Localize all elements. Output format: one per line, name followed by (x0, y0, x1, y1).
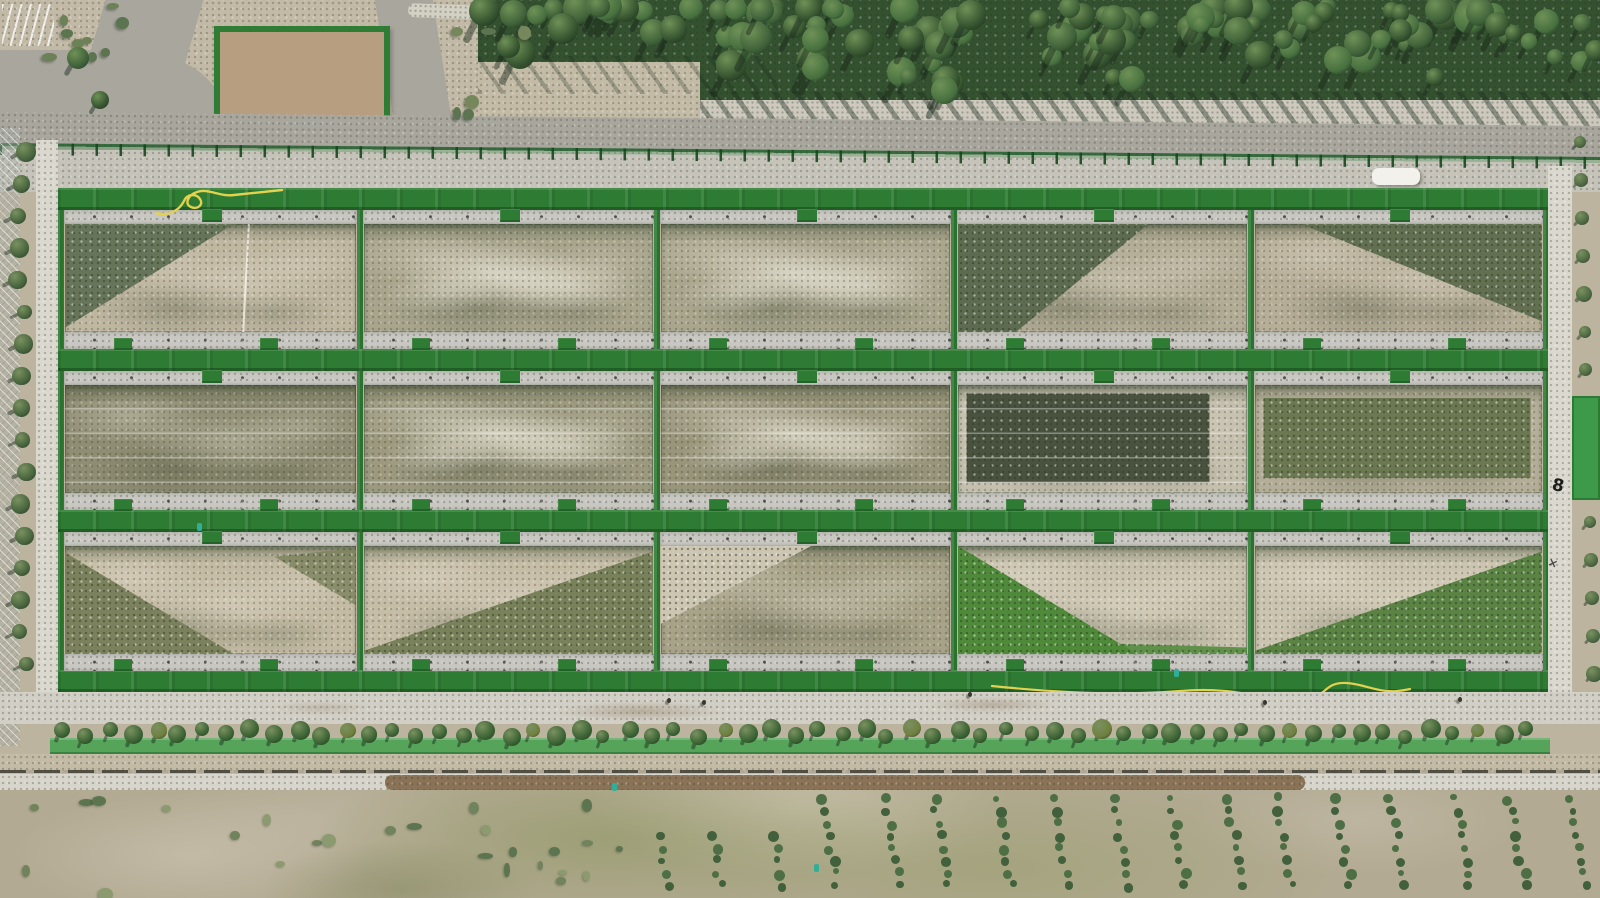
plantation-conifer (658, 858, 665, 865)
forest-tree (802, 26, 829, 53)
scrub-bush (162, 805, 171, 812)
forest-tree (1547, 49, 1563, 65)
gravel-strip-bottom (660, 654, 951, 671)
forest-tree-canopy (1389, 19, 1412, 42)
row-tree-canopy (1518, 721, 1533, 736)
row-tree (572, 720, 591, 739)
row-tree (361, 726, 378, 743)
right-shrub-canopy (1579, 363, 1592, 376)
forest-tree-canopy (1059, 0, 1080, 18)
plantation-conifer (1290, 881, 1296, 887)
plantation-conifer (1280, 833, 1289, 842)
bar-tab-up (412, 338, 430, 350)
row-tree (596, 730, 609, 743)
bush (60, 15, 69, 25)
plantation-conifer (1575, 843, 1584, 852)
bar-tab-down (797, 370, 817, 383)
plantation-conifer (826, 832, 834, 840)
row-tree-canopy (265, 725, 283, 743)
plantation-conifer (774, 844, 783, 853)
bar-tab-down (500, 531, 520, 544)
forest-tree (1505, 25, 1522, 42)
left-row-tree-canopy (10, 238, 29, 257)
plantation-conifer (1335, 820, 1345, 830)
forest-tree-canopy (469, 0, 499, 26)
bar-tab-up (114, 659, 132, 671)
plantation-conifer (1344, 881, 1352, 889)
row-tree (408, 728, 423, 743)
pale-patch (670, 228, 942, 327)
plot-r2c5 (1254, 371, 1543, 510)
forest-tree (898, 26, 923, 51)
row-tree-canopy (951, 721, 969, 739)
white-vehicle (1372, 168, 1420, 185)
forest-tree (956, 0, 986, 30)
bar-tab-up (1448, 338, 1466, 350)
plantation-conifer (774, 856, 780, 862)
row-tree (1190, 724, 1206, 740)
right-shrub (1574, 173, 1589, 188)
row-tree (77, 728, 92, 743)
row-tree (1353, 724, 1371, 742)
row-tree-canopy (526, 723, 540, 737)
gravel-strip-bottom (1254, 654, 1543, 671)
row-tree-canopy (1213, 727, 1228, 742)
scrub-bush (616, 846, 623, 852)
plantation-conifer (881, 793, 891, 803)
forest-tree (588, 0, 610, 17)
plantation-conifer (1237, 867, 1245, 875)
bar-tab-up (260, 338, 278, 350)
drip-lines (661, 385, 950, 493)
left-row-tree-canopy (14, 334, 33, 353)
left-row-tree-canopy (16, 142, 36, 162)
forest-tree-canopy (1426, 68, 1444, 86)
forest-tree (1585, 40, 1600, 60)
row-tree-canopy (924, 728, 941, 745)
bar-tab-up (855, 338, 873, 350)
plantation-conifer (887, 833, 895, 841)
forest-tree (1389, 19, 1412, 42)
row-tree-canopy (475, 721, 494, 740)
plantation-conifer (1398, 870, 1405, 877)
plot-r2c4-vegetation (958, 385, 1247, 493)
lone-tree-canopy (67, 47, 89, 69)
bar-tab-up (1303, 499, 1321, 511)
plot-r3c3 (660, 532, 951, 671)
bar-tab-up (412, 659, 430, 671)
grid-green-bar (55, 510, 1552, 532)
left-row-tree (15, 527, 33, 545)
forest-tree (1305, 14, 1323, 32)
right-shrub-canopy (1575, 211, 1589, 225)
plantation-conifer (1238, 882, 1246, 890)
vegetation-patch (364, 546, 653, 654)
plantation-conifer (1330, 793, 1341, 804)
bar-tab-up (260, 499, 278, 511)
forest-tree (1140, 11, 1158, 29)
row-tree (151, 722, 168, 739)
right-shrub (1576, 286, 1592, 302)
plantation-conifer (1522, 880, 1531, 889)
bar-tab-down (500, 209, 520, 222)
scrub-bush (385, 826, 396, 835)
row-tree (1142, 724, 1157, 739)
plantation-conifer (1509, 807, 1517, 815)
gravel-strip-bottom (64, 654, 357, 671)
row-tree-canopy (1071, 728, 1086, 743)
plantation-conifer (1113, 833, 1122, 842)
plantation-conifer (712, 871, 719, 878)
bar-tab-down (1094, 531, 1114, 544)
row-tree-canopy (1025, 726, 1040, 741)
teal-marker (814, 864, 819, 872)
row-tree (291, 721, 310, 740)
vegetation-patch (661, 546, 950, 654)
plot-r1c1 (64, 210, 357, 349)
plantation-conifer (1121, 858, 1130, 867)
plot-r3c1 (64, 532, 357, 671)
plantation-conifer (1336, 833, 1343, 840)
plantation-conifer (1110, 794, 1120, 804)
row-tree (690, 729, 707, 746)
plantation-conifer (1346, 869, 1356, 879)
row-tree-canopy (547, 726, 567, 746)
right-shrub-canopy (1584, 516, 1596, 528)
row-tree (1116, 726, 1131, 741)
bar-tab-up (1006, 659, 1024, 671)
forest-tree-canopy (931, 77, 958, 104)
row-tree (1445, 726, 1460, 741)
row-tree-canopy (999, 722, 1013, 736)
plantation-conifer (1224, 817, 1234, 827)
person-dot (1263, 700, 1267, 705)
plot-r1c5 (1254, 210, 1543, 349)
row-tree (312, 727, 330, 745)
bar-tab-up (855, 659, 873, 671)
plantation-conifer (939, 846, 948, 855)
forest-tree-canopy (588, 0, 610, 17)
bar-tab-up (114, 338, 132, 350)
bar-tab-up (709, 499, 727, 511)
bush (101, 48, 111, 57)
plantation-conifer (1396, 858, 1405, 867)
plantation-conifer (1458, 831, 1465, 838)
scrub-bush (30, 804, 39, 811)
left-row-tree (11, 591, 30, 610)
teal-marker (197, 523, 202, 531)
gravel-strip-bottom (660, 332, 951, 349)
row-tree-canopy (361, 726, 378, 743)
lone-tree-canopy (91, 91, 109, 109)
row-tree (1421, 719, 1441, 739)
row-tree (1071, 728, 1086, 743)
row-tree-canopy (1305, 725, 1322, 742)
right-shrub (1576, 249, 1590, 263)
plot-r1c3-vegetation (661, 224, 950, 332)
forest-tree (1426, 68, 1444, 86)
vegetation-patch (958, 546, 1247, 654)
row-tree (644, 728, 660, 744)
plot-r3c5 (1254, 532, 1543, 671)
forest-tree (750, 0, 774, 22)
row-tree (1234, 723, 1248, 737)
plantation-conifer (1055, 833, 1065, 843)
scrub-bush (230, 831, 240, 841)
right-shrub-canopy (1576, 249, 1590, 263)
row-tree (503, 728, 521, 746)
right-shrub (1575, 211, 1589, 225)
left-row-tree-canopy (17, 463, 36, 482)
plot-r2c4 (957, 371, 1248, 510)
scrub-bush (263, 814, 271, 826)
forest-tree (1059, 0, 1080, 18)
bar-tab-up (1152, 499, 1170, 511)
bush (465, 95, 479, 109)
forest-tree-canopy (1119, 66, 1145, 92)
row-tree (1495, 725, 1514, 744)
grid-green-bar (55, 349, 1552, 371)
row-tree-canopy (1353, 724, 1371, 742)
forest-tree (1324, 46, 1352, 74)
left-row-tree (8, 271, 27, 290)
row-tree (739, 724, 758, 743)
teal-marker (612, 783, 617, 791)
row-tree (762, 719, 781, 738)
row-tree (240, 719, 259, 738)
plantation-conifer (932, 794, 943, 805)
left-row-tree-canopy (13, 175, 30, 192)
bar-tab-up (1448, 499, 1466, 511)
bar-tab-up (1303, 659, 1321, 671)
row-tree-canopy (503, 728, 521, 746)
left-row-tree-canopy (11, 591, 30, 610)
plantation-conifer (1513, 856, 1524, 867)
bar-tab-up (1152, 659, 1170, 671)
plantation-conifer (1502, 796, 1512, 806)
right-shrub-canopy (1574, 136, 1587, 149)
row-tree (1471, 724, 1484, 737)
row-tree-canopy (195, 722, 209, 736)
row-tree-canopy (1375, 724, 1390, 739)
row-tree-canopy (903, 719, 921, 737)
row-tree-canopy (291, 721, 310, 740)
plantation-conifer (937, 830, 946, 839)
forest-tree (725, 0, 747, 20)
forest-tree (548, 13, 579, 44)
plantation-conifer (1172, 820, 1182, 830)
bottom-scrubland (0, 790, 1600, 898)
plantation-conifer (1572, 832, 1580, 840)
forest-tree-canopy (1274, 30, 1293, 49)
plantation-conifer (1064, 870, 1072, 878)
left-row-tree-canopy (14, 560, 31, 577)
plantation-conifer (1065, 881, 1073, 889)
plantation-conifer (1395, 831, 1403, 839)
bar-tab-up (260, 659, 278, 671)
row-tree (924, 728, 941, 745)
plantation-conifer (1055, 843, 1063, 851)
plantation-conifer (719, 880, 726, 887)
plot-r1c5-vegetation (1255, 224, 1542, 332)
row-tree-canopy (1445, 726, 1460, 741)
row-tree (265, 725, 283, 743)
left-row-tree-canopy (11, 494, 30, 513)
row-tree (622, 721, 639, 738)
plantation-conifer (1179, 880, 1188, 889)
row-tree-canopy (690, 729, 707, 746)
scrub-bush (312, 840, 323, 847)
forest-tree (1193, 16, 1210, 33)
bar-tab-down (797, 209, 817, 222)
bar-tab-up (855, 499, 873, 511)
scrub-bush (469, 802, 479, 814)
white-fence-posts (2, 4, 54, 46)
plantation-conifer (895, 867, 904, 876)
plantation-conifer (707, 831, 717, 841)
plantation-conifer (1170, 831, 1179, 840)
gravel-strip-bottom (660, 493, 951, 510)
plantation-conifer (1275, 819, 1282, 826)
row-tree-canopy (456, 728, 471, 743)
plantation-conifer (1577, 858, 1586, 867)
plantation-conifer (1002, 832, 1010, 840)
plantation-conifer (831, 882, 838, 889)
plot-r3c3-vegetation (661, 546, 950, 654)
plantation-conifer (936, 821, 943, 828)
row-tree-canopy (1161, 723, 1181, 743)
bar-tab-down (202, 370, 222, 383)
row-tree-canopy (1046, 722, 1064, 740)
plantation-conifer (1116, 819, 1122, 825)
left-row-tree (19, 657, 34, 672)
person-dot (968, 692, 972, 697)
row-tree (788, 727, 805, 744)
plantation-conifer (1120, 846, 1128, 854)
forest-tree (1274, 30, 1293, 49)
forest-tree (660, 15, 688, 43)
plantation-conifer (1450, 794, 1457, 801)
left-row-tree (13, 175, 30, 192)
plantation-conifer (662, 870, 671, 879)
gravel-strip-bottom (1254, 332, 1543, 349)
plantation-conifer (1463, 881, 1472, 890)
row-tree-canopy (719, 723, 733, 737)
plantation-conifer (1383, 794, 1392, 803)
vegetation-patch (958, 224, 1247, 332)
plantation-conifer (944, 870, 952, 878)
row-tree-canopy (218, 725, 234, 741)
row-tree-canopy (1142, 724, 1157, 739)
gravel-strip-bottom (363, 332, 654, 349)
left-row-tree (12, 367, 31, 386)
left-row-tree (14, 334, 33, 353)
pale-patch (373, 228, 645, 327)
plantation-conifer (665, 882, 674, 891)
bush (518, 26, 530, 39)
white-path-right (1548, 166, 1572, 714)
forest-tree-canopy (500, 0, 527, 27)
forest-tree-canopy (1425, 0, 1453, 24)
bar-tab-down (1094, 370, 1114, 383)
plantation-conifer (1233, 844, 1240, 851)
forest-tree-canopy (548, 13, 579, 44)
row-tree-canopy (54, 722, 70, 738)
row-tree (168, 725, 186, 743)
row-tree-canopy (1092, 719, 1112, 739)
row-tree (973, 728, 988, 743)
plantation-conifer (778, 883, 786, 891)
forest-tree-canopy (660, 15, 688, 43)
row-tree (666, 722, 680, 736)
plantation-conifer (1510, 831, 1521, 842)
forest-tree (931, 77, 958, 104)
forest-tree (1101, 5, 1126, 30)
row-tree-canopy (1421, 719, 1441, 739)
right-shrub-canopy (1574, 173, 1589, 188)
plot-r3c5-vegetation (1255, 546, 1542, 654)
plantation-conifer (930, 806, 937, 813)
forest-tree-canopy (956, 0, 986, 30)
plantation-conifer (1565, 795, 1573, 803)
yellow-hose-coil-top (150, 183, 290, 223)
plantation-conifer (1392, 845, 1399, 852)
gravel-strip-bottom (363, 654, 654, 671)
pale-patch (373, 389, 645, 488)
bush (61, 29, 73, 38)
plantation-conifer (993, 796, 1000, 803)
row-tree (195, 722, 209, 736)
vegetation-patch (958, 385, 1247, 493)
field-plot-grid (57, 188, 1550, 692)
plantation-conifer (830, 856, 841, 867)
plantation-conifer (1167, 808, 1174, 815)
plantation-conifer (1054, 818, 1062, 826)
left-row-tree (12, 624, 27, 639)
row-tree-canopy (1282, 723, 1297, 738)
plot-r2c1-vegetation (65, 385, 356, 493)
scrub-bush (22, 865, 30, 877)
bar-tab-down (1390, 209, 1410, 222)
row-tree (526, 723, 540, 737)
scrub-bush (549, 847, 559, 856)
forest-tree-canopy (1521, 33, 1538, 50)
left-row-tree-canopy (13, 399, 30, 416)
forest-tree-canopy (1029, 10, 1049, 30)
plantation-conifer (820, 807, 829, 816)
plot-r1c4 (957, 210, 1248, 349)
left-row-tree-canopy (12, 624, 27, 639)
scrub-bush (276, 861, 285, 867)
forest-tree (1425, 0, 1453, 24)
plot-r2c3 (660, 371, 951, 510)
row-tree-canopy (168, 725, 186, 743)
forest-tree-canopy (1324, 46, 1352, 74)
plot-r2c2-vegetation (364, 385, 653, 493)
plantation-conifer (1283, 869, 1292, 878)
plantation-conifer (1341, 845, 1350, 854)
plantation-conifer (1391, 818, 1401, 828)
plot-r1c3 (660, 210, 951, 349)
forest-tree-canopy (890, 0, 919, 23)
plantation-conifer (1234, 856, 1243, 865)
row-tree (1092, 719, 1112, 739)
gravel-strip-bottom (64, 493, 357, 510)
vegetation-patch (65, 224, 356, 332)
forest-tree (500, 0, 527, 27)
gravel-strip-bottom (363, 493, 654, 510)
right-shrub (1574, 136, 1587, 149)
